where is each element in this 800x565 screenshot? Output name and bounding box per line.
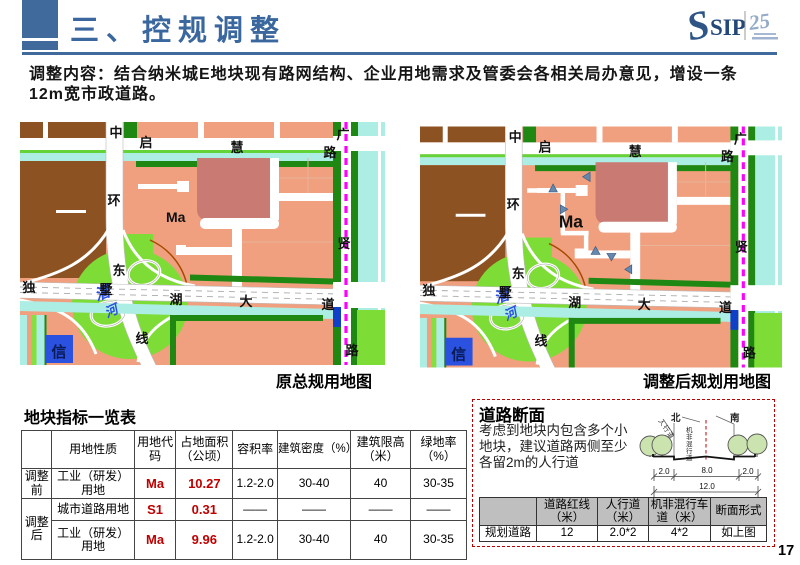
svg-text:行: 行 bbox=[686, 446, 693, 455]
svg-text:25: 25 bbox=[746, 8, 771, 35]
svg-text:SIP: SIP bbox=[710, 15, 746, 40]
svg-text:北: 北 bbox=[671, 412, 681, 424]
svg-text:2.0: 2.0 bbox=[658, 467, 670, 476]
svg-text:机: 机 bbox=[686, 425, 693, 434]
svg-text:12.0: 12.0 bbox=[699, 482, 715, 491]
svg-text:混: 混 bbox=[686, 439, 693, 448]
svg-text:南: 南 bbox=[730, 412, 740, 424]
svg-text:8.0: 8.0 bbox=[701, 466, 713, 475]
svg-text:2.0: 2.0 bbox=[742, 467, 754, 476]
svg-text:S: S bbox=[682, 6, 713, 46]
svg-text:Ma: Ma bbox=[559, 212, 583, 232]
svg-text:Ma: Ma bbox=[166, 209, 186, 225]
svg-text:非: 非 bbox=[686, 432, 693, 441]
